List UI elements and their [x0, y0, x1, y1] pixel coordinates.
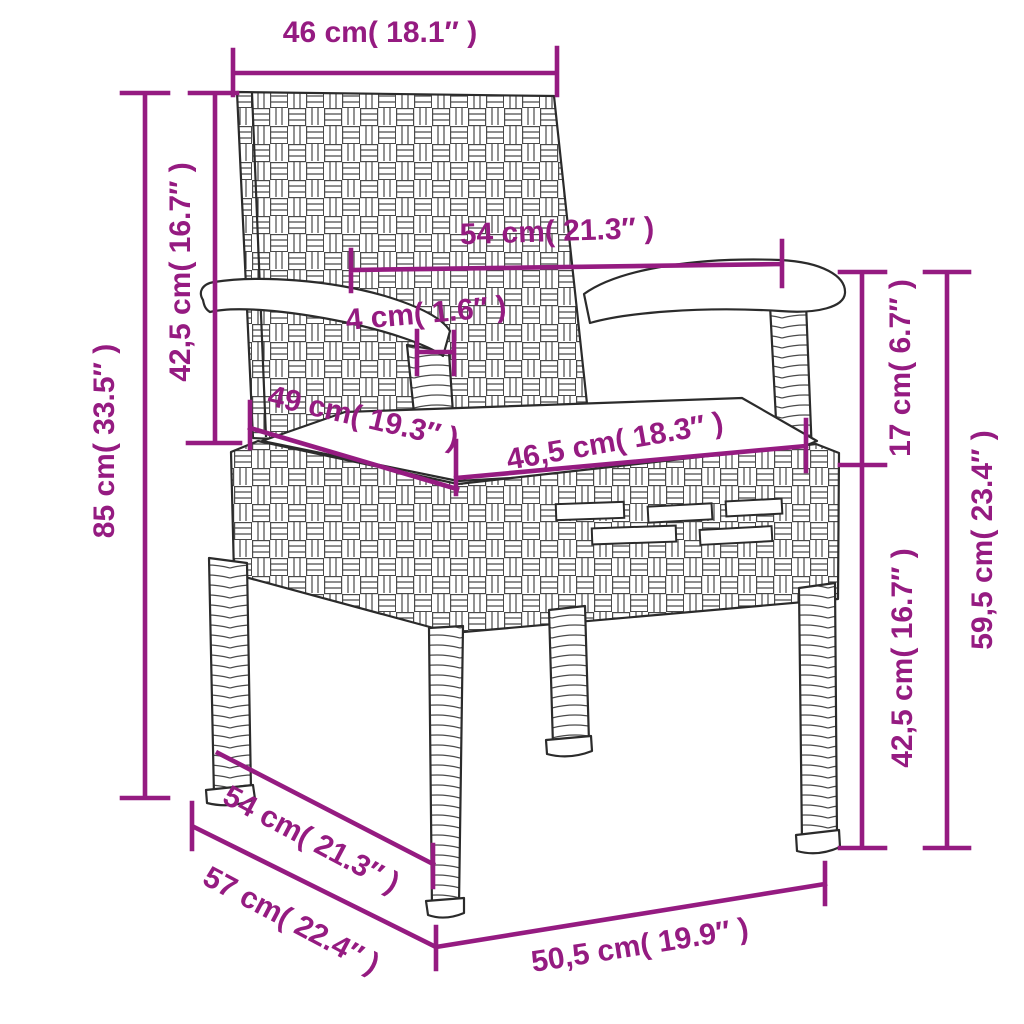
- dim-label-overall-height: 85 cm( 33.5″ ): [90, 344, 120, 538]
- dim-line-right-inner: [840, 272, 885, 848]
- rear-left-foot: [546, 736, 592, 756]
- dim-label-back-width: 46 cm( 18.1″ ): [283, 18, 477, 48]
- rear-left-leg: [549, 606, 589, 746]
- dim-label-backrest-height: 42,5 cm( 16.7″ ): [166, 162, 196, 382]
- rear-right-foot: [796, 830, 840, 853]
- dim-line-overall-height: [122, 93, 168, 798]
- dim-label-armrest-span: 54 cm( 21.3″ ): [459, 214, 654, 251]
- dim-label-seat-height: 42,5 cm( 16.7″ ): [888, 548, 918, 768]
- dim-label-seat-to-armrest: 17 cm( 6.7″ ): [886, 279, 916, 457]
- front-right-foot: [426, 898, 464, 918]
- dim-line-armrest-height: [925, 272, 969, 848]
- dimension-diagram: 46 cm( 18.1″ ) 42,5 cm( 16.7″ ) 85 cm( 3…: [0, 0, 1024, 1024]
- chair-illustration: [0, 0, 1024, 1024]
- dim-line-back-width: [233, 48, 557, 95]
- dim-label-armrest-height: 59,5 cm( 23.4″ ): [968, 430, 998, 650]
- rear-right-leg: [799, 583, 837, 843]
